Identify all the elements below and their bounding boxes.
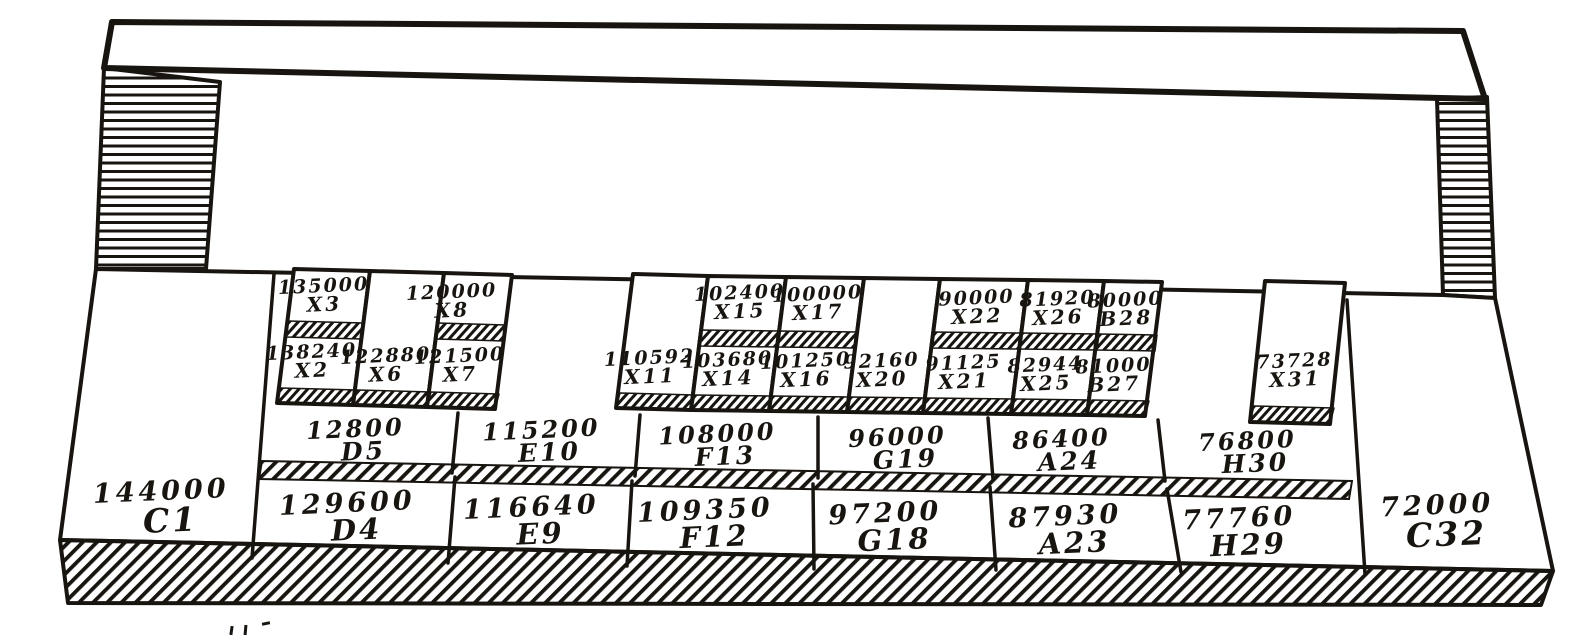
key-b28-label: B28 — [1088, 307, 1165, 331]
key-x22: 90000 X22 — [938, 287, 1016, 328]
key-x31-label: X31 — [1257, 368, 1334, 392]
key-b27-label: B27 — [1076, 373, 1153, 397]
key-x21: 91125 X21 — [925, 352, 1003, 393]
key-x26-label: X26 — [1020, 306, 1097, 330]
key-h30-label: H30 — [1213, 449, 1299, 478]
key-d5: 12800 D5 — [306, 415, 406, 467]
key-x7: 121500 X7 — [414, 345, 507, 387]
key-x25: 82944 X25 — [1007, 354, 1085, 395]
key-value-labels: 135000 X3 120000 X8 102400 X15 100000 X1… — [0, 0, 1595, 643]
stray-ink-marks — [228, 622, 274, 636]
key-a24-label: A24 — [1027, 447, 1113, 476]
key-g18-label: G18 — [845, 523, 944, 557]
key-h29-label: H29 — [1199, 528, 1298, 562]
key-b28: 80000 B28 — [1087, 289, 1165, 330]
key-a23: 87930 A23 — [1008, 501, 1124, 561]
key-x25-label: X25 — [1008, 372, 1085, 396]
key-x20: 92160 X20 — [843, 350, 921, 391]
key-c1: 144000 C1 — [92, 475, 231, 540]
key-x22-label: X22 — [939, 305, 1016, 329]
key-e10: 115200 E10 — [482, 415, 602, 468]
key-b27: 81000 B27 — [1075, 355, 1153, 396]
key-x16: 101250 X16 — [760, 350, 853, 392]
key-x21-label: X21 — [926, 370, 1003, 394]
key-e9: 116640 E9 — [462, 491, 601, 552]
key-g18: 97200 G18 — [828, 498, 944, 558]
key-x8: 120000 X8 — [406, 281, 499, 323]
key-a24: 86400 A24 — [1012, 425, 1112, 477]
key-x20-label: X20 — [844, 368, 921, 392]
key-g19: 96000 G19 — [848, 423, 948, 475]
key-c32: 72000 C32 — [1380, 490, 1496, 554]
key-f13: 108000 F13 — [658, 419, 778, 472]
key-x26: 81920 X26 — [1019, 288, 1097, 329]
key-g19-label: G19 — [863, 445, 949, 474]
key-x3: 135000 X3 — [278, 275, 371, 317]
key-h30: 76800 H30 — [1198, 427, 1298, 479]
key-x31: 73728 X31 — [1256, 350, 1334, 391]
key-f12: 109350 F12 — [636, 494, 775, 555]
key-h29: 77760 H29 — [1182, 503, 1298, 563]
enharmonic-keyboard-engraving: 135000 X3 120000 X8 102400 X15 100000 X1… — [0, 0, 1595, 643]
key-c32-label: C32 — [1397, 515, 1496, 553]
key-a23-label: A23 — [1025, 526, 1124, 560]
key-x17: 100000 X17 — [772, 283, 865, 325]
key-d4: 129600 D4 — [278, 487, 417, 548]
